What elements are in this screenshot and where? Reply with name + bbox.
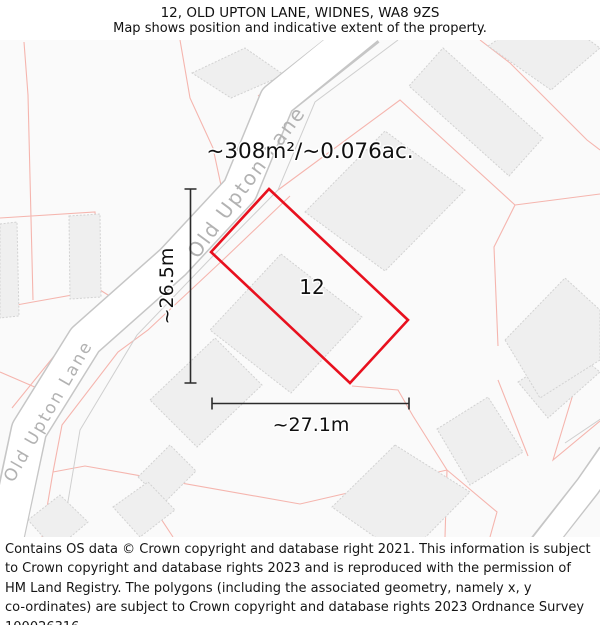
footer-line: to Crown copyright and database rights 2…: [5, 559, 599, 578]
property-map-page: 12, OLD UPTON LANE, WIDNES, WA8 9ZS Map …: [0, 0, 600, 625]
building-footprint: [69, 214, 101, 299]
map-container: Old Upton Lane Old Upton Lane ~308m²/~0.…: [0, 40, 600, 537]
page-title: 12, OLD UPTON LANE, WIDNES, WA8 9ZS: [0, 0, 600, 21]
copyright-footer: Contains OS data © Crown copyright and d…: [0, 537, 600, 625]
building-footprint: [0, 222, 19, 318]
page-subtitle: Map shows position and indicative extent…: [0, 21, 600, 37]
map-canvas: Old Upton Lane Old Upton Lane ~308m²/~0.…: [0, 40, 600, 537]
footer-line: 100026316.: [5, 618, 599, 625]
width-dimension-label: ~27.1m: [273, 414, 350, 436]
footer-line: co-ordinates) are subject to Crown copyr…: [5, 598, 599, 617]
footer-line: HM Land Registry. The polygons (includin…: [5, 579, 599, 598]
header: 12, OLD UPTON LANE, WIDNES, WA8 9ZS Map …: [0, 0, 600, 40]
height-dimension-label: ~26.5m: [156, 248, 178, 325]
footer-line: Contains OS data © Crown copyright and d…: [5, 540, 599, 559]
area-label: ~308m²/~0.076ac.: [206, 139, 413, 164]
plot-number-label: 12: [299, 275, 324, 299]
